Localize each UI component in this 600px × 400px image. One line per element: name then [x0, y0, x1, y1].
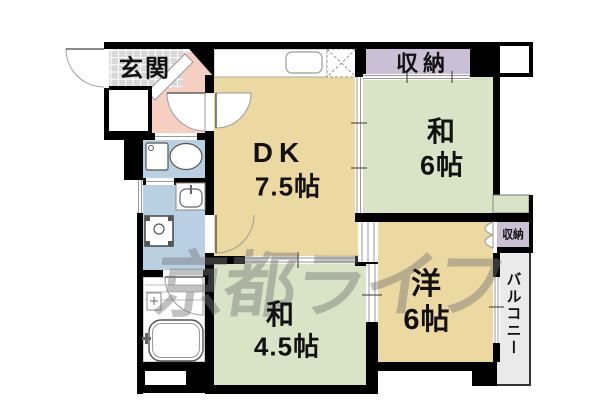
- floor-plan: 京都ライフ 玄関 収納 DK 7.5帖 和 6帖 和 4.5帖 洋 6帖 収納 …: [0, 0, 600, 400]
- washing-machine-icon: [145, 216, 173, 246]
- label-dk: DK: [253, 137, 305, 169]
- label-closet-north: 収納: [396, 46, 450, 78]
- pipe-space-box: [500, 46, 529, 73]
- kitchen-sink-icon: [286, 52, 322, 73]
- refrigerator-space-icon: [327, 49, 356, 77]
- entrance-door-arc: [66, 49, 104, 87]
- label-entrance: 玄関: [119, 49, 171, 84]
- label-balcony: バルコニー: [503, 272, 524, 357]
- japanese6-bay-window-floor: [493, 195, 529, 213]
- label-japanese6-size: 6帖: [420, 144, 464, 183]
- kitchen-counter-icon: [214, 49, 327, 77]
- shoe-cabinet-icon: [107, 88, 150, 133]
- label-closet-west: 収納: [502, 226, 524, 243]
- label-dk-size: 7.5帖: [255, 167, 321, 204]
- washbasin-icon: [176, 183, 205, 210]
- watermark: 京都ライフ: [150, 250, 510, 322]
- label-western6-size: 6帖: [403, 296, 450, 338]
- label-japanese45-size: 4.5帖: [254, 327, 320, 364]
- pipe-space-box-south: [144, 370, 187, 386]
